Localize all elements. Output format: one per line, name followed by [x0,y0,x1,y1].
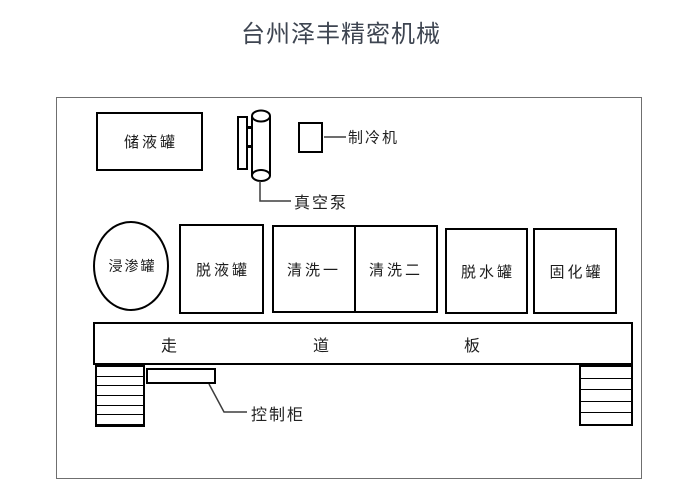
floor-plan-canvas: 台州泽丰精密机械 储液罐 真空泵 制冷机 控制柜 浸渗罐 脱液罐 清洗一 清洗二 [0,0,682,490]
stair-step [581,379,631,391]
curing-tank: 固化罐 [533,228,617,314]
stair-step [581,367,631,379]
stair-step [97,367,143,377]
stair-step [97,406,143,416]
walkway-board: 走 道 板 [93,322,633,365]
storage-tank-label: 储液罐 [124,131,178,152]
cleaning-tank-1-label: 清洗一 [287,259,341,280]
pump-coupling-tick [247,126,251,129]
stair-step [97,386,143,396]
vacuum-pump-motor [237,116,248,170]
stair-step [581,390,631,402]
drain-tank-label: 脱液罐 [196,259,250,280]
chiller-unit [298,122,323,153]
control-cabinet [146,368,216,384]
dewater-tank-label: 脱水罐 [461,261,515,282]
stair-step [97,396,143,406]
chiller-label: 制冷机 [348,127,399,148]
impregnation-tank: 浸渗罐 [93,221,169,311]
stair-step [97,377,143,387]
cleaning-tank-1: 清洗一 [274,227,356,311]
stair-step [97,415,143,424]
pump-coupling-tick [247,145,251,148]
cleaning-tanks: 清洗一 清洗二 [272,225,438,313]
drain-tank: 脱液罐 [179,224,264,314]
cleaning-tank-2-label: 清洗二 [369,259,423,280]
walkway-char-1: 走 [161,332,177,356]
vacuum-pump-label: 真空泵 [294,189,348,213]
storage-tank: 储液罐 [96,112,203,171]
stairs-left [95,365,145,427]
stair-step [581,413,631,424]
dewater-tank: 脱水罐 [445,228,528,314]
impregnation-tank-label: 浸渗罐 [109,256,157,276]
curing-tank-label: 固化罐 [549,261,603,282]
cleaning-tank-2: 清洗二 [356,227,436,311]
control-cabinet-label: 控制柜 [251,401,305,425]
stair-step [581,402,631,414]
stairs-right [579,365,633,426]
page-title: 台州泽丰精密机械 [0,14,682,49]
walkway-char-2: 道 [313,332,329,356]
walkway-char-3: 板 [464,332,480,356]
